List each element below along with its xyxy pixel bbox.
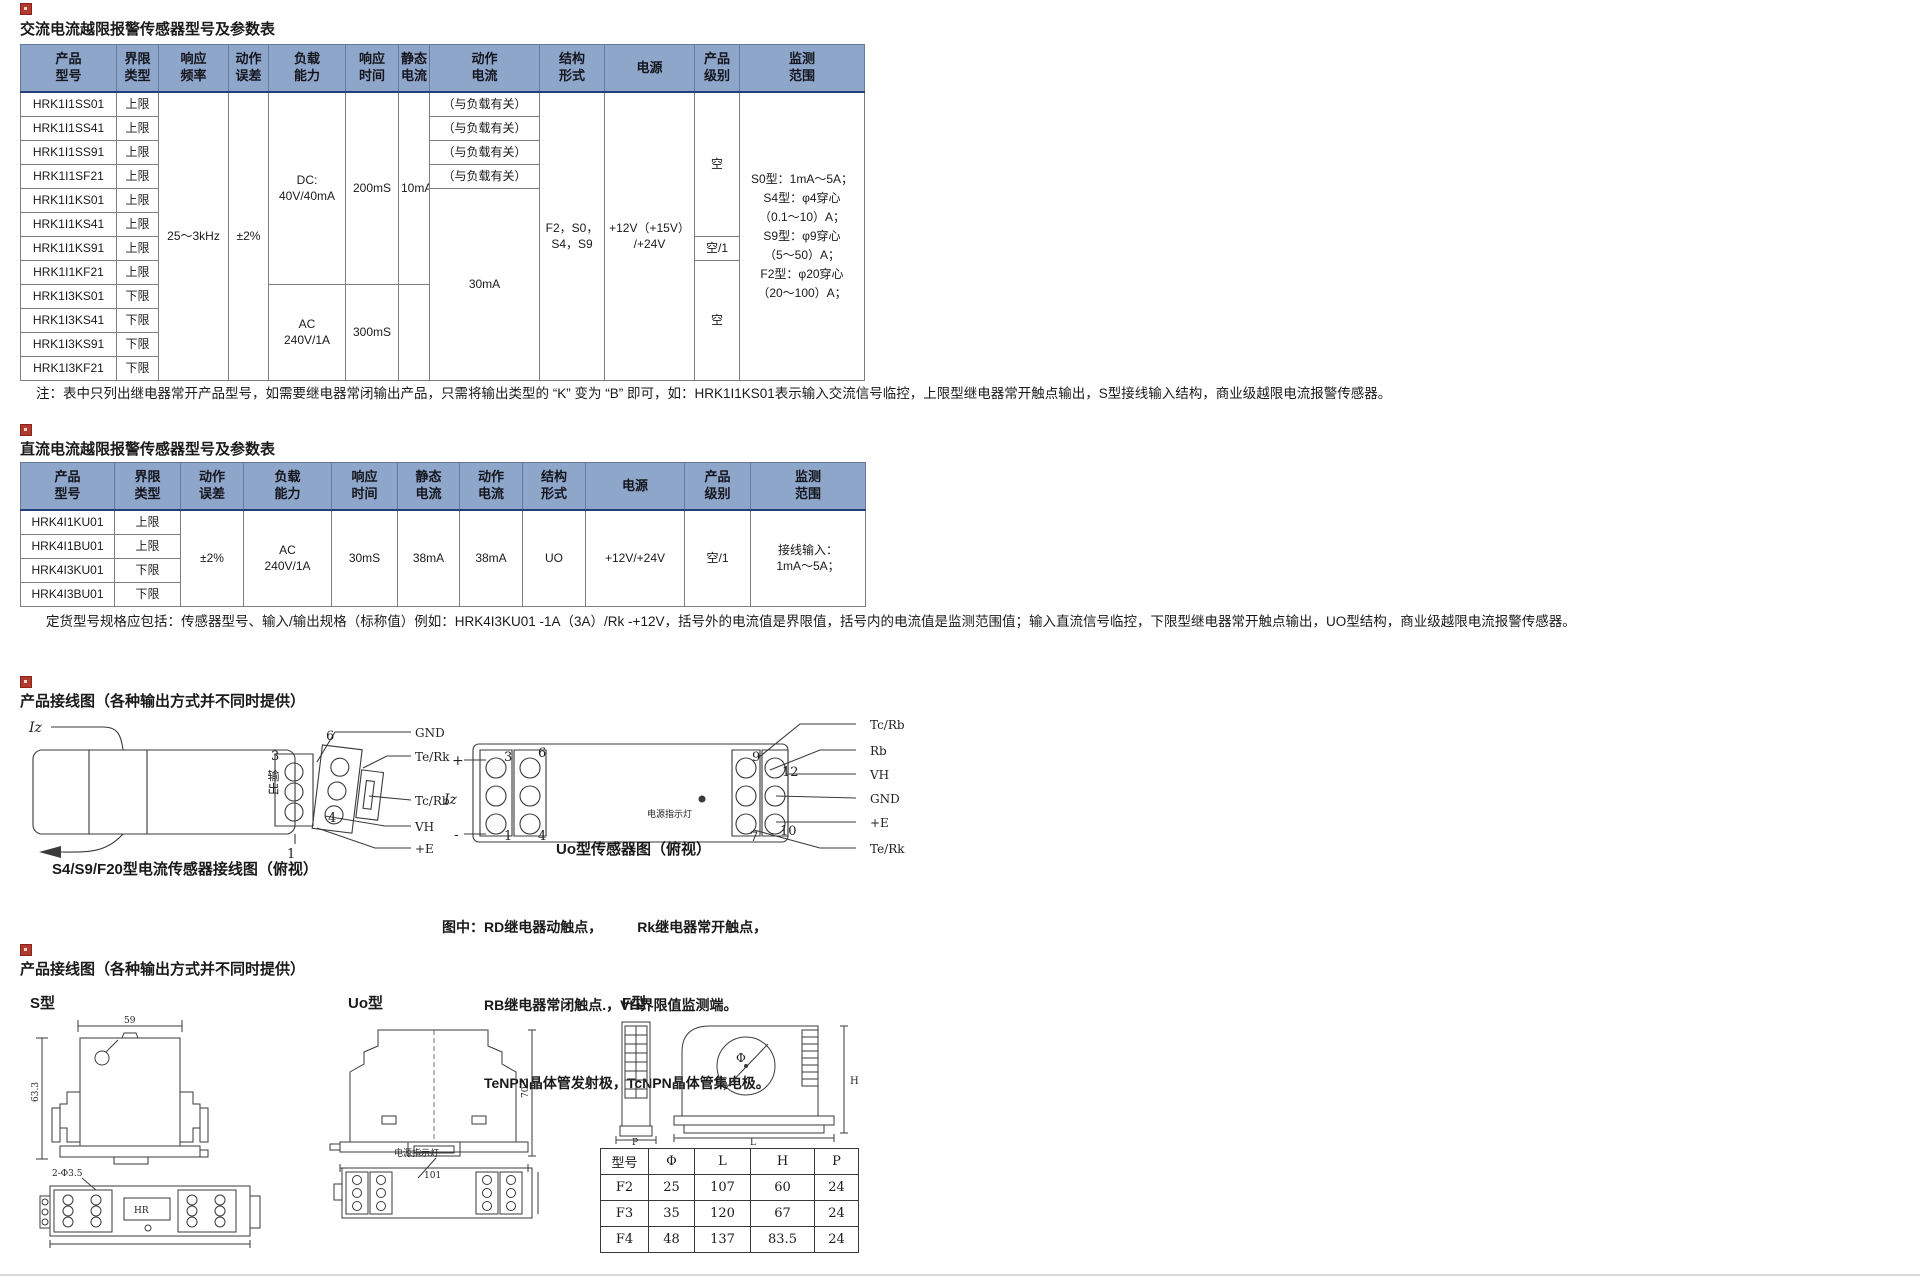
broken-image-icon [20, 3, 32, 15]
dim-70-5: 70.5 [521, 1078, 531, 1098]
gnd-label: GND [870, 792, 900, 806]
power-led-label: 电源指示灯 [394, 1147, 439, 1159]
pin-4-label: 4 [328, 811, 336, 826]
col-header: 响应 时间 [332, 463, 398, 511]
limit-cell: 上限 [117, 165, 159, 189]
sensor-outline [33, 727, 411, 858]
cell: 48 [649, 1227, 695, 1253]
freq-cell: 25～3kHz [159, 92, 229, 381]
dim-59: 59 [124, 1016, 136, 1026]
dim-holes: 2-Φ3.5 [52, 1169, 83, 1179]
rb-label: Rb [870, 744, 887, 758]
cell: 24 [815, 1175, 859, 1201]
model-cell: HRK1I1SS41 [21, 117, 117, 141]
pin-7-label: 7 [750, 830, 758, 845]
broken-image-icon [20, 944, 32, 956]
action-cell: （与负载有关） [430, 165, 540, 189]
col-header: 产品 级别 [685, 463, 751, 511]
arrow-head [39, 846, 61, 858]
action-cell: 38mA [460, 510, 523, 607]
cell: F4 [601, 1227, 649, 1253]
dim-h: H [850, 1076, 859, 1087]
s-type-front-view: 59 63.3 [30, 1014, 270, 1164]
col-header: 响应 频率 [159, 45, 229, 93]
limit-cell: 下限 [115, 559, 181, 583]
load-ac-cell: AC 240V/1A [269, 285, 346, 381]
model-cell: HRK1I1SS01 [21, 92, 117, 117]
dim-63-3: 63.3 [31, 1082, 41, 1102]
s-type-wiring-diagram: Iz 3 6 4 1 GND Te/Rk Tc/Rb VH +E [25, 716, 445, 862]
uo-type-caption: Uo型传感器图（俯视） [556, 838, 711, 859]
col-header: 监测 范围 [740, 45, 865, 93]
dim-l: L [750, 1138, 756, 1148]
cell: 83.5 [751, 1227, 815, 1253]
limit-cell: 上限 [117, 141, 159, 165]
uo-type-label: Uo型 [348, 992, 383, 1013]
col-header: 静态 电流 [399, 45, 430, 93]
ordering-note: 定货型号规格应包括：传感器型号、输入/输出规格（标称值）例如：HRK4I3KU0… [20, 605, 1810, 638]
col-header: 产品 型号 [21, 45, 117, 93]
col-header: 响应 时间 [346, 45, 399, 93]
drawing-outline [616, 1022, 656, 1144]
range-cell: S0型：1mA～5A； S4型：φ4穿心 （0.1～10）A； S9型：φ9穿心… [740, 92, 865, 381]
cell: 107 [695, 1175, 751, 1201]
legend-line-1: 图中：RD继电器动触点， Rk继电器常开触点， [442, 914, 770, 940]
model-cell: HRK1I1KF21 [21, 261, 117, 285]
dim-p: P [632, 1138, 638, 1148]
vh-label: VH [869, 768, 889, 782]
limit-cell: 上限 [115, 535, 181, 559]
col-header: 结构 形式 [540, 45, 605, 93]
col-header: Φ [649, 1149, 695, 1175]
col-header: 电源 [586, 463, 685, 511]
drawing-outline [674, 1026, 848, 1142]
ac-table-note: 注：表中只列出继电器常开产品型号，如需要继电器常闭输出产品，只需将输出类型的 “… [20, 384, 1916, 404]
cell: 35 [649, 1201, 695, 1227]
s-type-label: S型 [30, 992, 55, 1013]
drawing-outline [40, 1178, 260, 1248]
power-cell: +12V/+24V [586, 510, 685, 607]
limit-cell: 上限 [117, 261, 159, 285]
limit-cell: 上限 [117, 92, 159, 117]
cell: 24 [815, 1227, 859, 1253]
table-row: HRK4I1KU01 上限 ±2% AC 240V/1A 30mS 38mA 3… [21, 510, 866, 535]
action-cell: （与负载有关） [430, 117, 540, 141]
col-header: 型号 [601, 1149, 649, 1175]
table-row: F3 35 120 67 24 [601, 1201, 859, 1227]
broken-image-icon [20, 676, 32, 688]
action-merged-cell: 30mA [430, 189, 540, 381]
limit-cell: 下限 [117, 357, 159, 381]
dc-parameter-table: 产品 型号 界限 类型 动作 误差 负载 能力 响应 时间 静态 电流 动作 电… [20, 462, 866, 607]
limit-cell: 上限 [117, 213, 159, 237]
resp-ac-cell: 300mS [346, 285, 399, 381]
col-header: 动作 误差 [181, 463, 244, 511]
ac-parameter-table: 产品 型号 界限 类型 响应 频率 动作 误差 负载 能力 响应 时间 静态 电… [20, 44, 865, 381]
model-cell: HRK1I1KS91 [21, 237, 117, 261]
cell: F2 [601, 1175, 649, 1201]
header-row: 产品 型号 界限 类型 动作 误差 负载 能力 响应 时间 静态 电流 动作 电… [21, 463, 866, 511]
drawing-outline [36, 1020, 208, 1164]
ac-table-title: 交流电流越限报警传感器型号及参数表 [20, 18, 275, 39]
struct-cell: UO [523, 510, 586, 607]
error-cell: ±2% [229, 92, 269, 381]
page-bottom-divider [0, 1274, 1920, 1276]
pin-9-label: 9 [752, 750, 760, 765]
table-row: F4 48 137 83.5 24 [601, 1227, 859, 1253]
cell: 25 [649, 1175, 695, 1201]
s-type-caption: S4/S9/F20型电流传感器接线图（俯视） [52, 858, 318, 879]
model-cell: HRK1I3KS01 [21, 285, 117, 309]
table-row: F2 25 107 60 24 [601, 1175, 859, 1201]
pin-3-label: 3 [271, 749, 279, 764]
f-type-label: F型 [622, 992, 646, 1013]
limit-cell: 下限 [117, 285, 159, 309]
uo-type-bottom-view: 电源指示灯 [332, 1146, 547, 1228]
model-cell: HRK1I1KS01 [21, 189, 117, 213]
resp-cell: 30mS [332, 510, 398, 607]
limit-cell: 上限 [117, 237, 159, 261]
load-cell: AC 240V/1A [244, 510, 332, 607]
cell: 24 [815, 1201, 859, 1227]
col-header: L [695, 1149, 751, 1175]
power-led-label: 电源指示灯 [647, 808, 692, 820]
col-header: 静态 电流 [398, 463, 460, 511]
cell: 60 [751, 1175, 815, 1201]
col-header: P [815, 1149, 859, 1175]
wiring-heading-2: 产品接线图（各种输出方式并不同时提供） [20, 958, 305, 979]
range-cell: 接线输入： 1mA～5A； [751, 510, 866, 607]
struct-cell: F2，S0， S4，S9 [540, 92, 605, 381]
iz-label: Iz [443, 792, 458, 808]
f-type-side-view: P [608, 1012, 660, 1146]
grade-cell: 空/1 [685, 510, 751, 607]
col-header: 产品 型号 [21, 463, 115, 511]
dc-table-title: 直流电流越限报警传感器型号及参数表 [20, 438, 275, 459]
model-cell: HRK1I1KS41 [21, 213, 117, 237]
limit-cell: 下限 [115, 583, 181, 607]
col-header: 负载 能力 [269, 45, 346, 93]
model-cell: HRK1I3KF21 [21, 357, 117, 381]
col-header: 结构 形式 [523, 463, 586, 511]
plus-e-label: +E [870, 816, 889, 830]
model-cell: HRK4I3BU01 [21, 583, 115, 607]
header-row: 产品 型号 界限 类型 响应 频率 动作 误差 负载 能力 响应 时间 静态 电… [21, 45, 865, 93]
load-dc-cell: DC: 40V/40mA [269, 92, 346, 285]
tc-rb-label: Tc/Rb [870, 718, 905, 732]
datasheet-page: 交流电流越限报警传感器型号及参数表 产品 型号 界限 类型 响应 频率 动作 误… [0, 0, 1920, 1282]
model-cell: HRK1I3KS41 [21, 309, 117, 333]
pin-6-label: 6 [538, 746, 546, 761]
broken-image-icon [20, 424, 32, 436]
s-type-bottom-view: 2-Φ3.5 HR [38, 1166, 273, 1256]
limit-cell: 下限 [117, 309, 159, 333]
sensor-outline [464, 724, 856, 848]
pin-6-label: 6 [326, 729, 334, 744]
static-cell: 38mA [398, 510, 460, 607]
pin-12-label: 12 [782, 765, 799, 780]
col-header: 监测 范围 [751, 463, 866, 511]
limit-cell: 上限 [117, 117, 159, 141]
pin-4-label: 4 [538, 829, 546, 844]
resp-dc-cell: 200mS [346, 92, 399, 285]
limit-cell: 下限 [117, 333, 159, 357]
f-dimension-table: 型号 Φ L H P F2 25 107 60 24 F3 35 120 67 … [600, 1148, 859, 1253]
plus-label: + [452, 753, 464, 769]
col-header: H [751, 1149, 815, 1175]
cell: 67 [751, 1201, 815, 1227]
te-rk-label: Te/Rk [870, 842, 905, 856]
pin-3-label: 3 [504, 750, 512, 765]
header-row: 型号 Φ L H P [601, 1149, 859, 1175]
grade-cell: 空/1 [695, 237, 740, 261]
col-header: 负载 能力 [244, 463, 332, 511]
grade-cell: 空 [695, 261, 740, 381]
cell: F3 [601, 1201, 649, 1227]
minus-label: - [454, 827, 459, 843]
pin-1-label: 1 [504, 829, 512, 844]
col-header: 产品 级别 [695, 45, 740, 93]
static-ac-cell [399, 285, 430, 381]
f-type-front-view: Φ H L [666, 1012, 866, 1146]
model-cell: HRK4I3KU01 [21, 559, 115, 583]
dim-phi: Φ [736, 1051, 746, 1065]
col-header: 界限 类型 [115, 463, 181, 511]
error-cell: ±2% [181, 510, 244, 607]
limit-cell: 上限 [117, 189, 159, 213]
wiring-heading-1: 产品接线图（各种输出方式并不同时提供） [20, 690, 305, 711]
action-cell: （与负载有关） [430, 141, 540, 165]
col-header: 界限 类型 [117, 45, 159, 93]
col-header: 动作 电流 [460, 463, 523, 511]
limit-cell: 上限 [115, 510, 181, 535]
col-header: 电源 [605, 45, 695, 93]
output-vertical-label: 输出 [266, 770, 281, 796]
col-header: 动作 电流 [430, 45, 540, 93]
model-cell: HRK1I1SS91 [21, 141, 117, 165]
grade-cell: 空 [695, 92, 740, 237]
cell: 137 [695, 1227, 751, 1253]
cell: 120 [695, 1201, 751, 1227]
iz-label: Iz [28, 720, 43, 736]
pin-10-label: 10 [780, 824, 797, 839]
hr-label: HR [134, 1206, 149, 1216]
vh-label: VH [414, 820, 434, 834]
static-dc-cell: 10mA [399, 92, 430, 285]
model-cell: HRK4I1KU01 [21, 510, 115, 535]
table-row: HRK1I1SS01 上限 25～3kHz ±2% DC: 40V/40mA 2… [21, 92, 865, 117]
plus-e-label: +E [415, 842, 434, 856]
model-cell: HRK1I3KS91 [21, 333, 117, 357]
drawing-outline [334, 1158, 538, 1218]
model-cell: HRK4I1BU01 [21, 535, 115, 559]
col-header: 动作 误差 [229, 45, 269, 93]
power-cell: +12V（+15V） /+24V [605, 92, 695, 381]
model-cell: HRK1I1SF21 [21, 165, 117, 189]
action-cell: （与负载有关） [430, 92, 540, 117]
